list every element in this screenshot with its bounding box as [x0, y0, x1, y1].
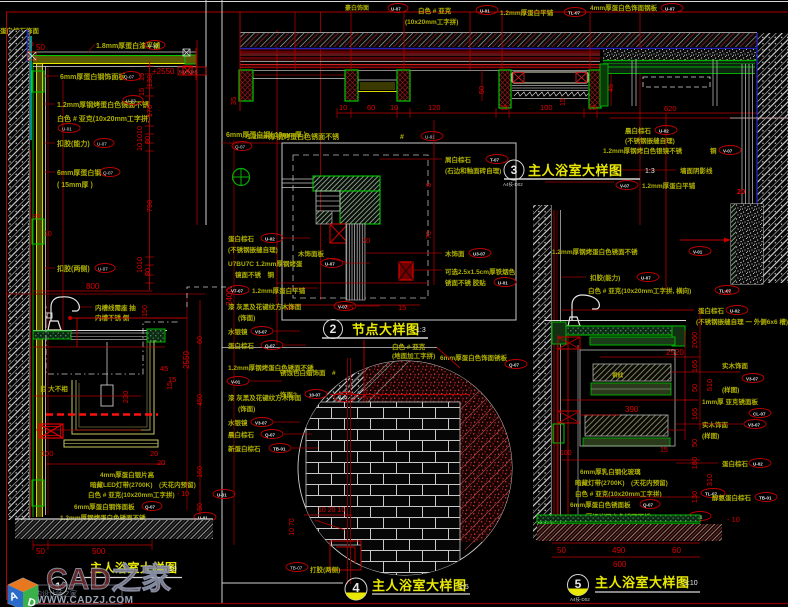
svg-text:可选2.5x1.5cm厚铁烟色: 可选2.5x1.5cm厚铁烟色	[445, 267, 516, 276]
svg-text:230: 230	[121, 391, 130, 404]
svg-text:扣胶(能力): 扣胶(能力)	[57, 139, 90, 148]
svg-text:800: 800	[86, 282, 100, 291]
svg-text:6mm厚蛋白钢饰面板: 6mm厚蛋白钢饰面板	[60, 72, 126, 81]
svg-text:50: 50	[690, 384, 699, 392]
svg-text:10 70: 10 70	[289, 518, 296, 536]
svg-text:1.2mm厚蛋白平铺: 1.2mm厚蛋白平铺	[642, 181, 696, 190]
svg-text:Q-07: Q-07	[124, 75, 135, 80]
svg-text:醇氨蛋白棕石: 醇氨蛋白棕石	[712, 493, 752, 502]
svg-text:50: 50	[197, 503, 204, 511]
svg-text:木饰面: 木饰面	[444, 249, 465, 258]
svg-text:V3-07: V3-07	[746, 377, 759, 382]
svg-text:1.2mm厚蛋白平铺: 1.2mm厚蛋白平铺	[500, 8, 554, 17]
svg-text:TL-07: TL-07	[568, 11, 580, 16]
svg-text:4mm厚蛋白色饰面钢板: 4mm厚蛋白色饰面钢板	[590, 3, 658, 12]
svg-text:U-02: U-02	[730, 309, 740, 314]
svg-text:U-02: U-02	[753, 462, 763, 467]
svg-text:铜: 铜	[710, 146, 717, 155]
svg-text:U-07: U-07	[391, 7, 401, 12]
svg-text:1.2mm厚钢烤蛋白色锈面不锈: 1.2mm厚钢烤蛋白色锈面不锈	[552, 247, 638, 256]
svg-text:WWW.CADZJ.COM: WWW.CADZJ.COM	[37, 595, 134, 606]
svg-text:U-07: U-07	[98, 267, 108, 272]
svg-text:打胶(两侧): 打胶(两侧)	[310, 565, 340, 574]
svg-text:15: 15	[167, 382, 174, 390]
svg-text:170: 170	[145, 105, 154, 118]
svg-text:暗藏LED灯带(2700K) (天花内预留): 暗藏LED灯带(2700K) (天花内预留)	[90, 480, 196, 489]
svg-text:V-07: V-07	[620, 184, 630, 189]
svg-text:Q-07: Q-07	[643, 503, 654, 508]
svg-text:主人浴室大样图: 主人浴室大样图	[528, 163, 623, 178]
svg-text:漆 灰黑及花键纹方木饰面: 漆 灰黑及花键纹方木饰面	[228, 302, 302, 311]
svg-text:510: 510	[705, 379, 714, 392]
svg-text:内槽线需座 抽: 内槽线需座 抽	[95, 303, 136, 312]
svg-text:锈面不锈 胶贴: 锈面不锈 胶贴	[445, 278, 486, 287]
svg-text:165: 165	[690, 360, 699, 373]
svg-text:Q-07: Q-07	[145, 505, 156, 510]
svg-text:U-01: U-01	[217, 493, 227, 498]
svg-text:80: 80	[143, 268, 152, 276]
svg-text:白色 # 亚克(10x20mm工字拼): 白色 # 亚克(10x20mm工字拼)	[57, 114, 150, 123]
svg-text:2: 2	[330, 322, 337, 336]
svg-text:10: 10	[135, 126, 144, 134]
svg-text:(不锈钢嵌缝自理): (不锈钢嵌缝自理)	[625, 136, 675, 145]
svg-text:V3-07: V3-07	[255, 330, 268, 335]
svg-text:白色 # 亚克(10x20mm工字拼, 横向): 白色 # 亚克(10x20mm工字拼, 横向)	[588, 286, 691, 295]
svg-text:15: 15	[660, 447, 668, 454]
svg-text:Q-07: Q-07	[265, 433, 276, 438]
svg-text:310: 310	[705, 474, 714, 487]
svg-text:扣胶(两侧): 扣胶(两侧)	[57, 264, 90, 273]
svg-text:蛋白棕石: 蛋白棕石	[698, 306, 725, 315]
svg-text:Q-07: Q-07	[509, 363, 520, 368]
svg-text:10: 10	[135, 143, 144, 151]
svg-text:U-07: U-07	[665, 7, 675, 12]
svg-text:1mm厚 亚克锈面板: 1mm厚 亚克锈面板	[702, 397, 758, 406]
svg-text:2060: 2060	[690, 332, 699, 349]
svg-text:15: 15	[500, 103, 508, 112]
svg-text:1:3: 1:3	[416, 327, 426, 334]
svg-text:U3-07: U3-07	[473, 252, 486, 257]
svg-text:V-01: V-01	[231, 380, 241, 385]
svg-text:60: 60	[197, 336, 204, 344]
svg-text:50: 50	[690, 439, 699, 447]
svg-text:U-01: U-01	[198, 516, 208, 521]
svg-text:10: 10	[135, 257, 144, 265]
svg-text:Q-07: Q-07	[103, 171, 114, 176]
svg-text:100: 100	[560, 450, 572, 457]
svg-text:2550: 2550	[182, 351, 191, 369]
svg-text:镜面不锈 铜: 镜面不锈 铜	[235, 270, 275, 279]
svg-text:70: 70	[426, 231, 433, 239]
svg-text:10: 10	[339, 103, 347, 112]
svg-text:150: 150	[142, 305, 149, 317]
svg-text:U7BU7C 1.2mm厚钢烤蛋: U7BU7C 1.2mm厚钢烤蛋	[228, 259, 303, 268]
svg-text:45: 45	[160, 364, 168, 373]
svg-text:晨白棕石: 晨白棕石	[228, 430, 255, 439]
svg-text:新蛋白棕石: 新蛋白棕石	[228, 444, 261, 453]
svg-text:蛋白棕石: 蛋白棕石	[722, 459, 749, 468]
svg-text:1.2mm厚钢烤白色银镜不锈: 1.2mm厚钢烤白色银镜不锈	[603, 146, 683, 155]
svg-text:U-07: U-07	[325, 262, 335, 267]
svg-text:Q-07: Q-07	[265, 344, 276, 349]
svg-text:U-10: U-10	[148, 44, 158, 49]
svg-text:180: 180	[690, 457, 699, 470]
svg-text:#: #	[400, 134, 404, 141]
svg-text:20: 20	[157, 458, 165, 467]
svg-text:60: 60	[367, 103, 375, 112]
svg-text:白色 # 亚克(10x20mm工字拼): 白色 # 亚克(10x20mm工字拼)	[88, 490, 175, 499]
svg-text:130: 130	[145, 75, 154, 88]
svg-text:8: 8	[426, 183, 433, 187]
svg-text:6mm厚蛋白钢: 6mm厚蛋白钢	[57, 168, 101, 177]
svg-text:蛋白棕石: 蛋白棕石	[228, 341, 255, 350]
svg-text:节点大样图: 节点大样图	[352, 322, 420, 337]
svg-text:U-03: U-03	[126, 99, 136, 104]
svg-text:U-07: U-07	[641, 276, 651, 281]
svg-text:50: 50	[557, 546, 566, 555]
svg-text:实木饰面: 实木饰面	[702, 420, 729, 429]
svg-text:20: 20	[362, 236, 370, 245]
svg-text:6mm厚蛋白钢饰面板: 6mm厚蛋白钢饰面板	[74, 502, 135, 511]
svg-text:主人浴室大样图: 主人浴室大样图	[595, 575, 690, 590]
svg-text:V-07: V-07	[723, 149, 733, 154]
svg-text:1:5: 1:5	[459, 584, 469, 591]
svg-text:3: 3	[511, 163, 518, 177]
svg-text:(样图): (样图)	[722, 385, 739, 394]
svg-text:漆 灰黑及花键纹方木饰面: 漆 灰黑及花键纹方木饰面	[228, 393, 302, 402]
svg-text:Q-07: Q-07	[235, 145, 246, 150]
svg-text:15: 15	[588, 103, 596, 112]
svg-text:620: 620	[664, 104, 677, 113]
svg-text:目 大不相: 目 大不相	[40, 384, 68, 393]
svg-text:U-01: U-01	[62, 127, 72, 132]
svg-text:A4技-D02: A4技-D02	[570, 596, 590, 603]
svg-text:35: 35	[229, 97, 238, 105]
svg-text:白色 # 亚克: 白色 # 亚克	[418, 6, 452, 15]
svg-text:V-07: V-07	[338, 305, 348, 310]
svg-text:130: 130	[690, 491, 699, 504]
svg-text:160: 160	[197, 466, 204, 478]
svg-text:木饰面板: 木饰面板	[297, 249, 325, 258]
svg-text:50: 50	[36, 547, 45, 556]
svg-text:100: 100	[540, 103, 553, 112]
svg-text:165: 165	[690, 408, 699, 421]
svg-text:V3-07: V3-07	[255, 421, 268, 426]
svg-text:内槽不锈 侧: 内槽不锈 侧	[95, 313, 130, 322]
svg-text:(不锈钢嵌缝自理): (不锈钢嵌缝自理)	[228, 245, 278, 254]
svg-text:20: 20	[737, 187, 745, 196]
svg-text:10: 10	[390, 103, 398, 112]
svg-text:U-01: U-01	[480, 9, 490, 14]
svg-text:(不锈钢嵌缝自理 一 外侧6x6 槽): (不锈钢嵌缝自理 一 外侧6x6 槽)	[696, 317, 788, 326]
svg-text:钢戗: 钢戗	[612, 371, 624, 379]
svg-text:790: 790	[145, 200, 154, 213]
svg-text:(饰面): (饰面)	[238, 404, 255, 413]
svg-text:1.2mm厚钢烤蛋白色锈面不锈: 1.2mm厚钢烤蛋白色锈面不锈	[228, 363, 314, 372]
svg-text:10: 10	[44, 231, 52, 238]
svg-text:20: 20	[150, 449, 158, 458]
svg-text:1:3: 1:3	[645, 168, 655, 175]
svg-text:白色 # 亚克: 白色 # 亚克	[392, 342, 426, 351]
svg-text:1.2mm厚钢烤蛋白色锈面不锈: 1.2mm厚钢烤蛋白色锈面不锈	[247, 132, 340, 141]
svg-text:450: 450	[197, 394, 204, 406]
svg-text:( 15mm厚 ): ( 15mm厚 )	[57, 180, 93, 189]
svg-text:4mm厚蛋白银片高: 4mm厚蛋白银片高	[100, 470, 155, 479]
svg-text:墙面阴影线: 墙面阴影线	[680, 166, 713, 175]
svg-text:50X50X5: 50X50X5	[179, 70, 198, 75]
svg-text:暗藏灯带(2700K) (天花内预留): 暗藏灯带(2700K) (天花内预留)	[575, 478, 668, 487]
svg-text:U-07: U-07	[97, 142, 107, 147]
svg-text:CL-07: CL-07	[753, 412, 766, 417]
svg-text:6mm厚蛋白色饰面锈板: 6mm厚蛋白色饰面锈板	[440, 353, 508, 362]
svg-text:T-07: T-07	[490, 158, 500, 163]
svg-text:15: 15	[560, 98, 567, 106]
svg-text:(10x20mm工字拼): (10x20mm工字拼)	[405, 17, 458, 26]
svg-text:TB-01: TB-01	[273, 447, 286, 452]
svg-text:U-02: U-02	[659, 129, 669, 134]
svg-text:+2550: +2550	[152, 67, 175, 76]
svg-text:TL-07: TL-07	[719, 289, 731, 294]
svg-text:600: 600	[613, 560, 627, 569]
svg-text:U-01: U-01	[498, 281, 508, 286]
svg-text:屑白棕石: 屑白棕石	[444, 155, 472, 164]
svg-text:豪白饰面: 豪白饰面	[345, 4, 369, 12]
svg-text:80: 80	[143, 136, 152, 144]
svg-text:490: 490	[612, 546, 626, 555]
svg-text:15: 15	[137, 88, 146, 96]
svg-text:4: 4	[352, 580, 360, 595]
svg-text:15: 15	[398, 303, 406, 312]
svg-text:1:10: 1:10	[684, 580, 698, 587]
svg-text:V3-07: V3-07	[748, 423, 761, 428]
svg-text:50: 50	[36, 43, 45, 52]
svg-text:(饰面): (饰面)	[238, 313, 255, 322]
svg-text:35: 35	[32, 212, 40, 221]
svg-text:晨白棕石: 晨白棕石	[625, 126, 652, 135]
svg-text:A4技-D02: A4技-D02	[503, 181, 523, 188]
svg-text:(样图): (样图)	[702, 431, 719, 440]
svg-text:V7-07: V7-07	[231, 289, 244, 294]
svg-text:水银镜: 水银镜	[228, 327, 248, 336]
svg-text:390: 390	[625, 405, 639, 414]
svg-text:10-07: 10-07	[309, 393, 321, 398]
svg-text:50: 50	[477, 86, 486, 94]
svg-text:- 10: - 10	[177, 491, 189, 498]
svg-text:主人浴室大样图: 主人浴室大样图	[372, 578, 467, 593]
svg-text:(石边和釉面砖自理): (石边和釉面砖自理)	[445, 166, 501, 175]
svg-text:V-07: V-07	[338, 396, 348, 401]
svg-text:水银镜: 水银镜	[228, 418, 248, 427]
svg-text:6mm厚乳白钢化玻璃: 6mm厚乳白钢化玻璃	[580, 467, 641, 476]
svg-text:(地面加工字拼): (地面加工字拼)	[392, 351, 435, 360]
svg-text:10 20 10: 10 20 10	[318, 507, 345, 514]
svg-text:1.2mm厚蛋白平铺: 1.2mm厚蛋白平铺	[252, 286, 306, 295]
svg-text:实木饰面: 实木饰面	[722, 361, 749, 370]
svg-text:5: 5	[575, 577, 582, 591]
svg-text:120: 120	[428, 103, 441, 112]
svg-text:500: 500	[92, 547, 106, 556]
svg-text:TB-07: TB-07	[290, 566, 303, 571]
svg-text:6mm厚蛋白色锈面板: 6mm厚蛋白色锈面板	[570, 500, 631, 509]
svg-text:U-02: U-02	[265, 237, 275, 242]
svg-text:TB-01: TB-01	[759, 496, 772, 501]
svg-text:蛋白棕石: 蛋白棕石	[228, 234, 255, 243]
svg-text:100: 100	[41, 449, 54, 458]
svg-text:V-01: V-01	[693, 250, 703, 255]
svg-text:60: 60	[672, 546, 681, 555]
svg-text:- 10: - 10	[727, 515, 740, 524]
svg-text:扣胶(能力): 扣胶(能力)	[590, 273, 620, 282]
